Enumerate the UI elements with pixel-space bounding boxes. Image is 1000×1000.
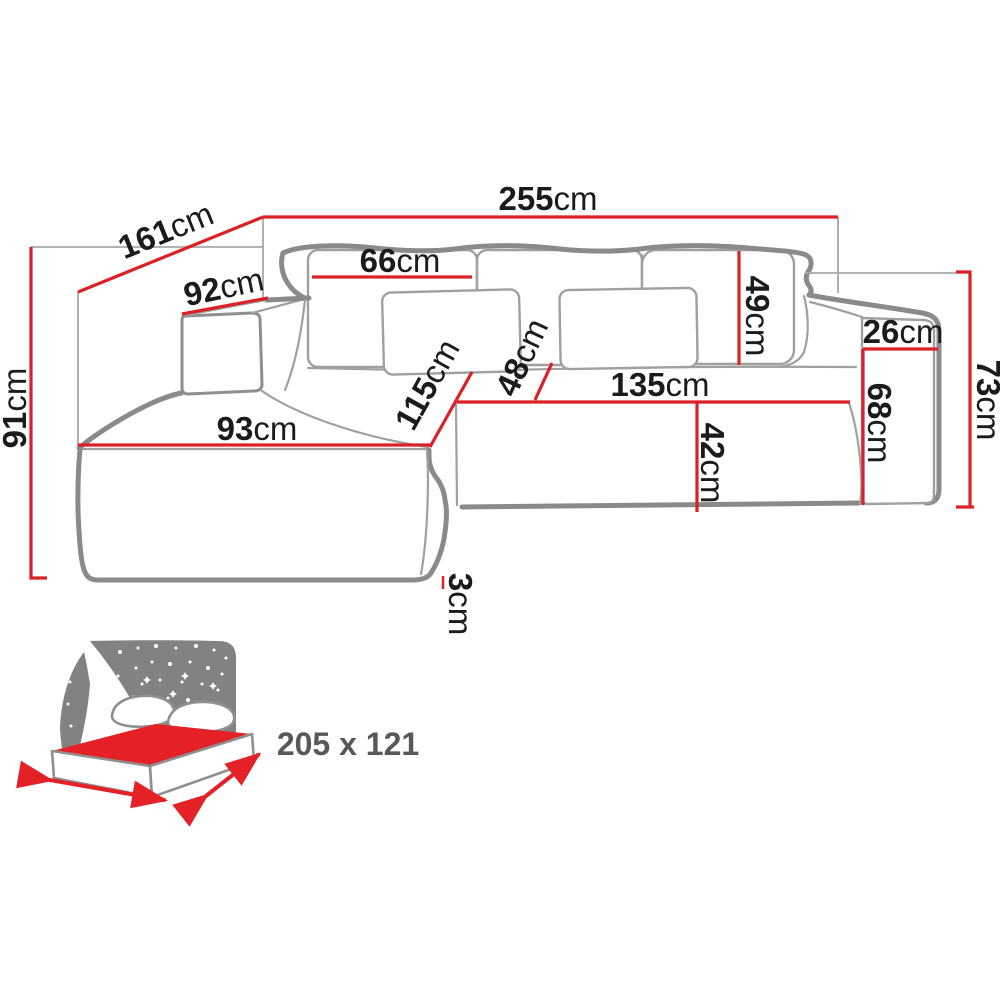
- left-armrest-back-edge: [267, 298, 309, 300]
- dim-label-255: 255cm: [498, 180, 597, 217]
- dim-label-49: 49cm: [739, 276, 776, 357]
- left-armrest-front-face: [182, 313, 262, 394]
- backrest-left-end: [282, 253, 305, 298]
- dim-label-3: 3cm: [442, 573, 479, 635]
- chaise-outline: [78, 450, 447, 580]
- throw-pillow-right: [559, 288, 697, 369]
- chaise-inner-right-edge: [421, 452, 428, 574]
- dim-label-26: 26cm: [863, 313, 944, 350]
- seat-left-edge: [456, 404, 457, 505]
- dim-label-42: 42cm: [694, 423, 731, 504]
- sleeping-area-icon: [50, 640, 258, 800]
- sleeping-area-size-label: 205 x 121: [277, 726, 419, 762]
- bed-pillow-left: [112, 696, 174, 727]
- sofa-dimension-diagram: 255cm 161cm 91cm 92cm 66cm 49cm 26cm 73c…: [0, 0, 1000, 1000]
- seat-right-corner: [849, 403, 861, 503]
- chaise-left-sweep: [79, 393, 181, 448]
- dim-line-91: [31, 247, 47, 578]
- diagram-canvas: 255cm 161cm 91cm 92cm 66cm 49cm 26cm 73c…: [0, 0, 1000, 1000]
- dim-label-92: 92cm: [180, 260, 267, 313]
- dim-label-73: 73cm: [970, 360, 1000, 441]
- dim-label-68: 68cm: [861, 383, 898, 464]
- seat-bottom-edge: [462, 503, 859, 507]
- dim-label-91: 91cm: [0, 368, 33, 449]
- dim-label-135: 135cm: [610, 366, 709, 403]
- dim-label-93: 93cm: [217, 410, 298, 447]
- dim-label-66: 66cm: [360, 242, 441, 279]
- backrest-left-gap-curve: [285, 300, 305, 390]
